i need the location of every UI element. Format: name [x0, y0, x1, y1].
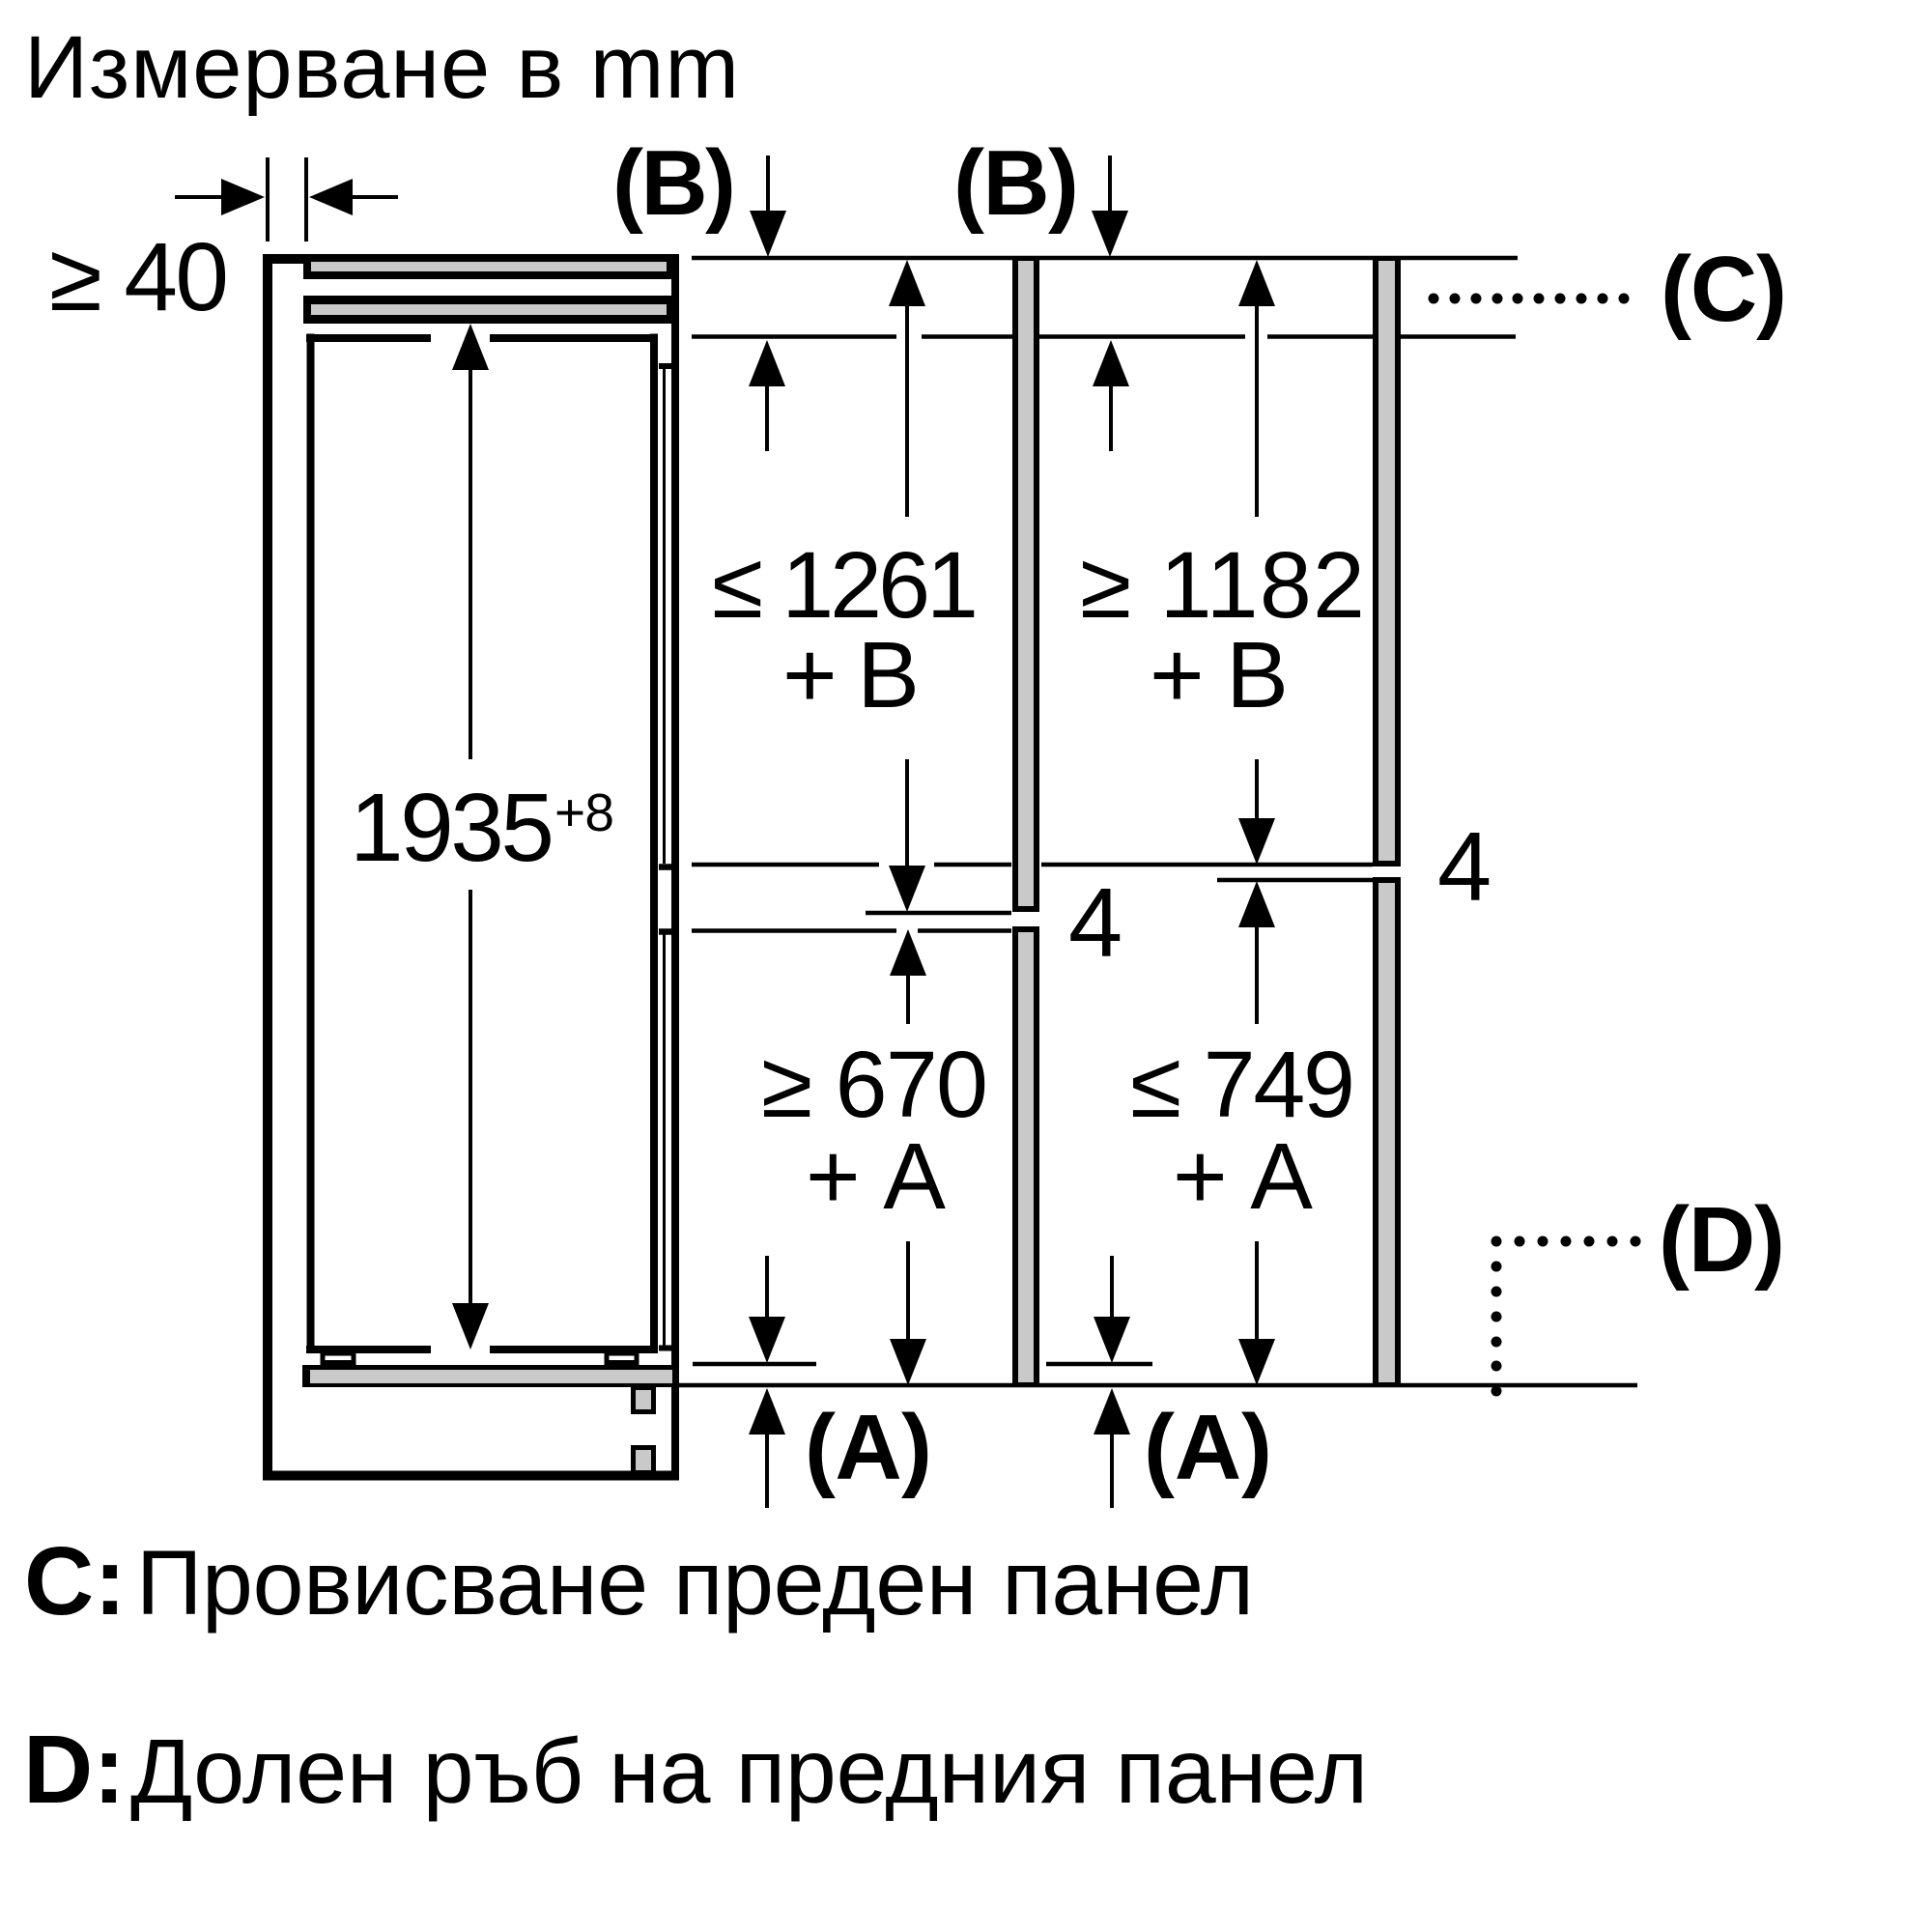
- svg-text:(D): (D): [1659, 1188, 1785, 1292]
- svg-text:4: 4: [1068, 869, 1122, 978]
- svg-text:D:: D:: [23, 1716, 126, 1824]
- svg-text:(C): (C): [1661, 238, 1787, 341]
- svg-text:Провисване преден панел: Провисване преден панел: [136, 1532, 1254, 1634]
- svg-text:C:: C:: [24, 1527, 127, 1635]
- svg-text:1935: 1935: [350, 774, 554, 882]
- svg-text:(A): (A): [1144, 1396, 1272, 1499]
- svg-text:≤ 749: ≤ 749: [1130, 1032, 1355, 1137]
- svg-text:4: 4: [1437, 813, 1492, 922]
- svg-text:(A): (A): [805, 1396, 932, 1499]
- svg-text:≥ 40: ≥ 40: [49, 223, 229, 331]
- svg-text:+ A: + A: [1173, 1123, 1313, 1229]
- svg-text:+ B: + B: [1150, 622, 1289, 727]
- svg-text:Долен ръб на предния панел: Долен ръб на предния панел: [130, 1720, 1368, 1823]
- svg-text:(B): (B): [953, 131, 1079, 235]
- svg-text:Измерване в mm: Измерване в mm: [24, 18, 739, 117]
- svg-text:+8: +8: [554, 782, 614, 842]
- svg-text:(B): (B): [612, 131, 736, 235]
- svg-text:≥ 670: ≥ 670: [761, 1032, 988, 1137]
- svg-text:+ A: + A: [806, 1123, 946, 1229]
- svg-text:+ B: + B: [782, 622, 920, 727]
